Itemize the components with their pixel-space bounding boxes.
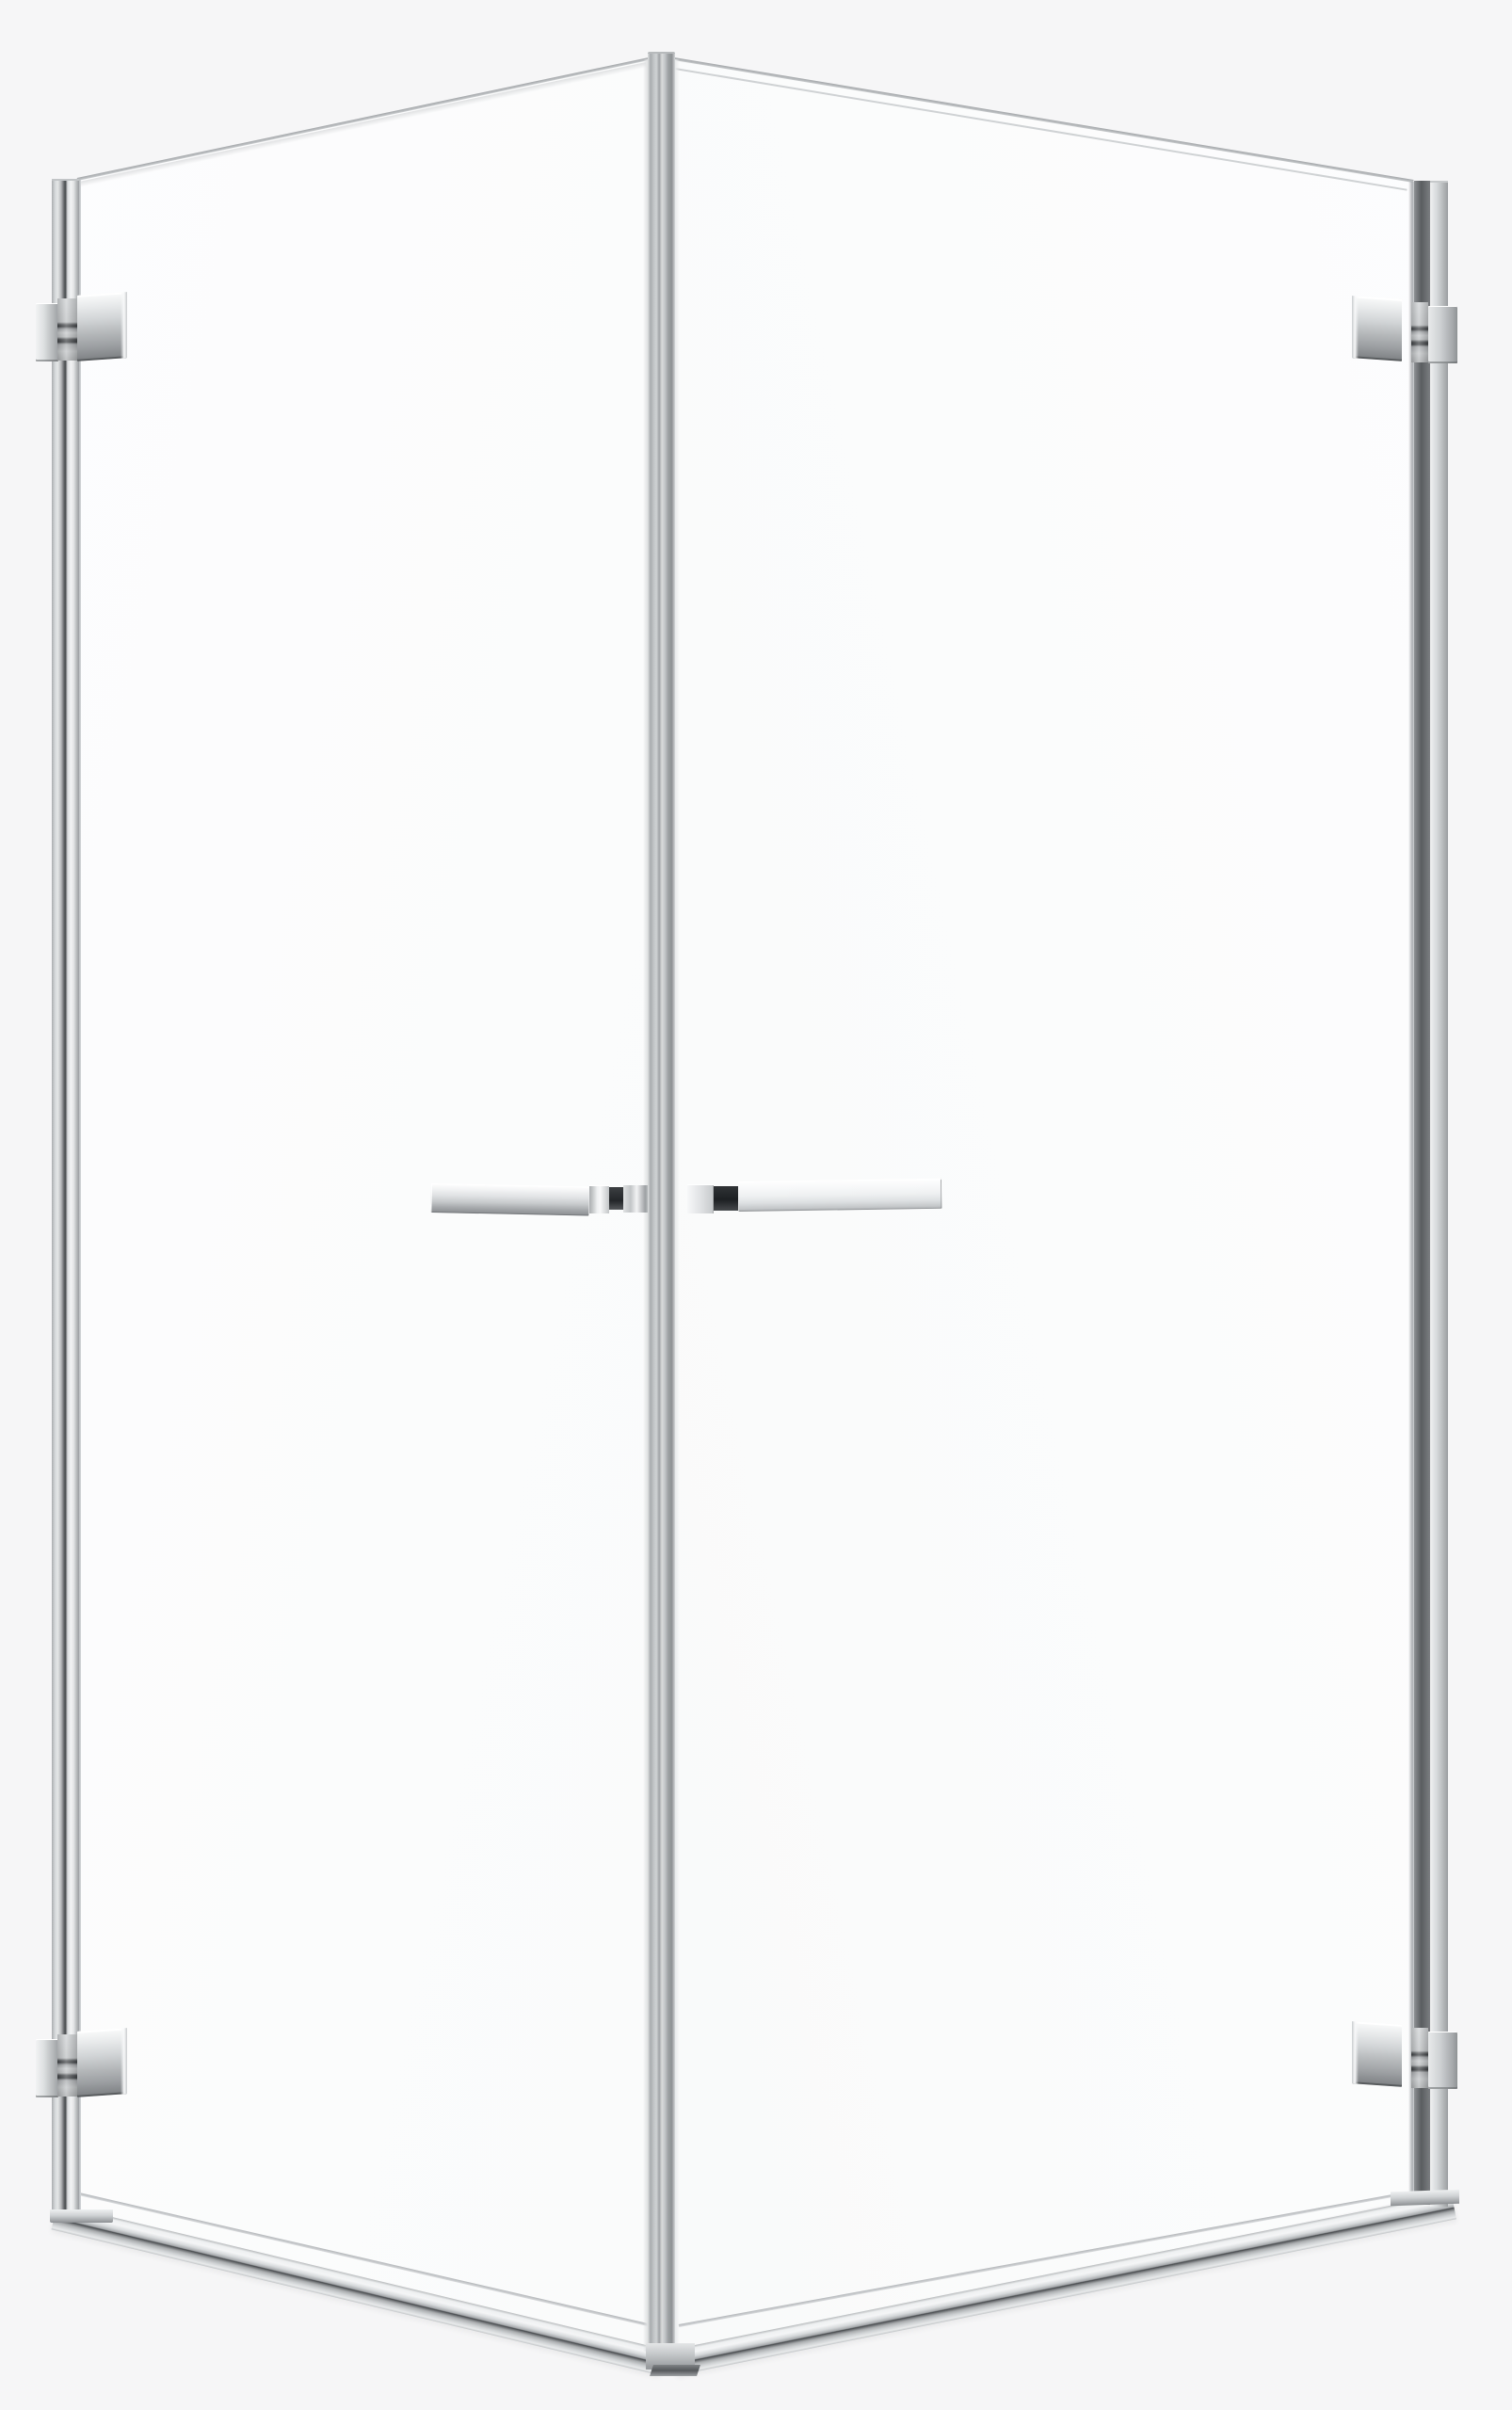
hinge-pin-icon [1411, 302, 1428, 362]
corner-post [648, 52, 675, 2357]
hinge-top-left [36, 294, 141, 367]
handle-connector [623, 1185, 648, 1213]
handle-bar [430, 1183, 589, 1216]
hinge-glass-clamp [1352, 296, 1402, 361]
hinge-wall-block-icon [1428, 2032, 1457, 2089]
right-wall-profile-outer-strip [1430, 181, 1448, 2207]
left-wall-profile [52, 179, 79, 2215]
hinge-pin-icon [57, 2034, 77, 2097]
hinge-pin-icon [1411, 2028, 1428, 2088]
right-door-handle [687, 1181, 943, 1213]
handle-mount-pad [714, 1186, 738, 1211]
hinge-top-right [1352, 297, 1457, 371]
hinge-bottom-right [1352, 2023, 1457, 2097]
hinge-glass-clamp [1352, 2021, 1402, 2087]
hinge-wall-block-icon [36, 303, 58, 361]
hinge-glass-clamp [77, 2028, 127, 2097]
right-door-corner-edge [675, 59, 680, 2352]
corner-post-foot-step [650, 2365, 700, 2376]
left-wall-profile-foot [50, 2209, 113, 2223]
hinge-bottom-left [36, 2030, 141, 2103]
right-wall-profile-foot [1391, 2190, 1459, 2207]
handle-bracket [589, 1185, 609, 1213]
left-door-handle [431, 1183, 650, 1215]
hinge-pin-icon [57, 298, 77, 361]
hinge-glass-clamp [77, 292, 127, 361]
right-wall-profile-inner-strip [1414, 181, 1430, 2205]
handle-mount-pad [609, 1187, 623, 1210]
hinge-wall-block-icon [36, 2039, 58, 2097]
hinge-wall-block-icon [1428, 306, 1457, 363]
handle-bar [738, 1179, 941, 1212]
product-photo-canvas [0, 0, 1512, 2410]
handle-connector [687, 1184, 714, 1213]
